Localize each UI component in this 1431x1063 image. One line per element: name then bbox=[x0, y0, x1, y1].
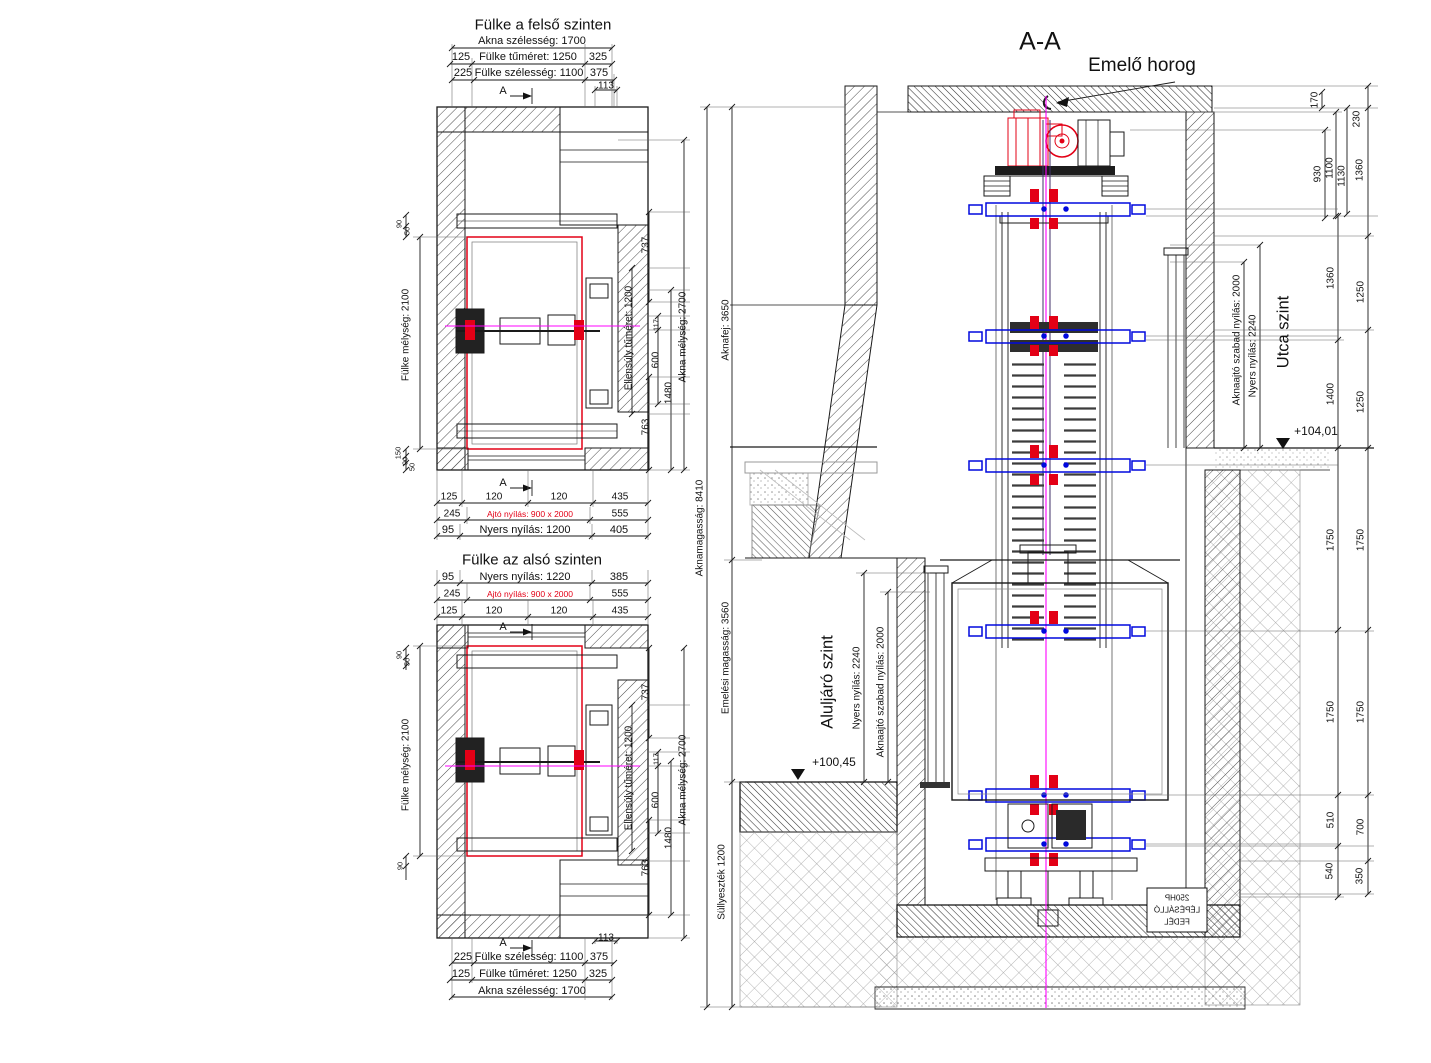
dim: 1400 bbox=[1326, 383, 1337, 405]
dim: 435 bbox=[612, 492, 629, 503]
dim-nyers-nyilas: Nyers nyílás: 1220 bbox=[479, 571, 570, 583]
dim-sullyesztek: Süllyeszték 1200 bbox=[717, 844, 728, 920]
dim: 230 bbox=[1352, 111, 1363, 128]
plan-lower-title: Fülke az alsó szinten bbox=[462, 552, 602, 569]
dim: 50 bbox=[408, 463, 417, 471]
dim: 225 bbox=[454, 951, 472, 963]
dim-ellensuly-tumeret: Ellensúly tűméret: 1200 bbox=[624, 286, 635, 391]
dim-aknaajto-2000: Aknaajtó szabad nyílás: 2000 bbox=[1232, 275, 1243, 406]
dim: 1750 bbox=[1356, 529, 1367, 551]
dim: 325 bbox=[589, 968, 607, 980]
dim: 120 bbox=[486, 606, 503, 617]
pit-cover-label: LÉPÉSÁLLÓ bbox=[1154, 906, 1200, 915]
dim: 555 bbox=[612, 509, 629, 520]
dim-nyers-nyilas: Nyers nyílás: 1200 bbox=[479, 524, 570, 536]
drawing-linework bbox=[0, 0, 1431, 1063]
dim-aknamagassag: Aknamagasság: 8410 bbox=[695, 480, 706, 577]
dim: 90 bbox=[396, 862, 405, 870]
dim: 350 bbox=[1355, 868, 1366, 885]
dim: 50 bbox=[403, 658, 412, 666]
dim-763: 763 bbox=[641, 860, 652, 877]
label-utca-szint: Utca szint bbox=[1275, 296, 1294, 368]
dim: 95 bbox=[442, 571, 454, 583]
dim-737: 737 bbox=[641, 237, 652, 254]
dim-600: 600 bbox=[651, 352, 662, 369]
dim: 125 bbox=[441, 492, 458, 503]
dim-763: 763 bbox=[641, 419, 652, 436]
dim-113: 113 bbox=[598, 933, 614, 944]
dim-ellensuly-tumeret: Ellensúly tűméret: 1200 bbox=[624, 726, 635, 831]
dim-aknaajto-2000: Aknaajtó szabad nyílás: 2000 bbox=[876, 627, 887, 758]
dim: 245 bbox=[444, 509, 461, 520]
dim: 930 bbox=[1313, 166, 1324, 183]
pit-cover-label: FEDÉL bbox=[1164, 918, 1190, 927]
level-mark-100-45: +100,45 bbox=[812, 755, 856, 769]
dim: 245 bbox=[444, 589, 461, 600]
dim: 1360 bbox=[1326, 267, 1337, 289]
section-marker-a: A bbox=[499, 477, 506, 489]
dim-113: 113 bbox=[598, 81, 614, 92]
dim-akna-melyseg: Akna mélység: 2700 bbox=[678, 735, 689, 826]
dim: 385 bbox=[610, 571, 628, 583]
dim-1480: 1480 bbox=[664, 827, 675, 849]
dim: 405 bbox=[610, 524, 628, 536]
dim: 1130 bbox=[1337, 165, 1348, 187]
dim: 125 bbox=[452, 968, 470, 980]
dim-600: 600 bbox=[651, 792, 662, 809]
dim: 435 bbox=[612, 606, 629, 617]
dim: 325 bbox=[589, 51, 607, 63]
dim-aknafej: Aknafej: 3650 bbox=[721, 299, 732, 360]
dim-fulke-szelesseg: Fülke szélesség: 1100 bbox=[475, 951, 584, 963]
dim-emelesi-magassag: Emelési magasság: 3560 bbox=[721, 602, 732, 714]
plan-lower-body bbox=[437, 625, 648, 938]
dim: 225 bbox=[454, 67, 472, 79]
dim: 555 bbox=[612, 589, 629, 600]
dim: 1750 bbox=[1326, 701, 1337, 723]
dim: 120 bbox=[551, 606, 568, 617]
dim: 50 bbox=[403, 227, 412, 235]
dim: 700 bbox=[1356, 819, 1367, 836]
dim-fulke-melyseg: Fülke mélység: 2100 bbox=[401, 719, 412, 811]
dim-nyers-nyilas-2240: Nyers nyílás: 2240 bbox=[1248, 315, 1259, 398]
level-mark-104-01: +104,01 bbox=[1294, 424, 1338, 438]
dim: 375 bbox=[590, 67, 608, 79]
rail-brackets bbox=[969, 203, 1145, 851]
dim: 1100 bbox=[1325, 157, 1336, 179]
dim: 120 bbox=[551, 492, 568, 503]
dim: 125 bbox=[452, 51, 470, 63]
dim-fulke-melyseg: Fülke mélység: 2100 bbox=[401, 289, 412, 381]
dim: 540 bbox=[1325, 863, 1336, 880]
dim: 95 bbox=[442, 524, 454, 536]
dim-fulke-tumeret-top: Fülke tűméret: 1250 bbox=[479, 51, 577, 63]
dim: 375 bbox=[590, 951, 608, 963]
dim-akna-melyseg: Akna mélység: 2700 bbox=[678, 292, 689, 383]
dim-akna-szelesseg: Akna szélesség: 1700 bbox=[478, 985, 586, 997]
dim-fulke-szelesseg-top: Fülke szélesség: 1100 bbox=[475, 67, 584, 79]
pit-cover-label: 250HP bbox=[1165, 894, 1189, 903]
dim-117: 117 bbox=[652, 753, 661, 765]
section-title: A-A bbox=[1019, 28, 1061, 57]
dim: 1360 bbox=[1355, 159, 1366, 181]
plan-upper-body bbox=[437, 107, 648, 470]
dim-117: 117 bbox=[652, 319, 661, 331]
dim: 120 bbox=[486, 492, 503, 503]
elevator-car bbox=[940, 545, 1180, 926]
section-marker-a: A bbox=[499, 937, 506, 949]
dim: 125 bbox=[441, 606, 458, 617]
dim: 510 bbox=[1326, 812, 1337, 829]
plan-upper-title: Fülke a felső szinten bbox=[475, 17, 612, 34]
dim-fulke-tumeret: Fülke tűméret: 1250 bbox=[479, 968, 577, 980]
dim-akna-szelesseg-top: Akna szélesség: 1700 bbox=[478, 35, 586, 47]
dim-1480: 1480 bbox=[664, 382, 675, 404]
dim-ajto-nyilas: Ajtó nyílás: 900 x 2000 bbox=[487, 509, 573, 519]
dim: 1750 bbox=[1326, 529, 1337, 551]
dim: 1250 bbox=[1356, 391, 1367, 413]
label-aluljaro-szint: Aluljáró szint bbox=[819, 635, 838, 729]
dim: 1750 bbox=[1356, 701, 1367, 723]
section-marker-a: A bbox=[499, 85, 506, 97]
dim-nyers-nyilas-2240: Nyers nyílás: 2240 bbox=[852, 647, 863, 730]
dim-ajto-nyilas: Ajtó nyílás: 900 x 2000 bbox=[487, 589, 573, 599]
dim-737: 737 bbox=[641, 684, 652, 701]
hook-label: Emelő horog bbox=[1088, 55, 1196, 77]
dim: 1250 bbox=[1356, 281, 1367, 303]
dim: 170 bbox=[1310, 92, 1321, 109]
elevator-drawing-sheet: Fülke a felső szinten Akna szélesség: 17… bbox=[0, 0, 1431, 1063]
section-marker-a: A bbox=[499, 621, 506, 633]
